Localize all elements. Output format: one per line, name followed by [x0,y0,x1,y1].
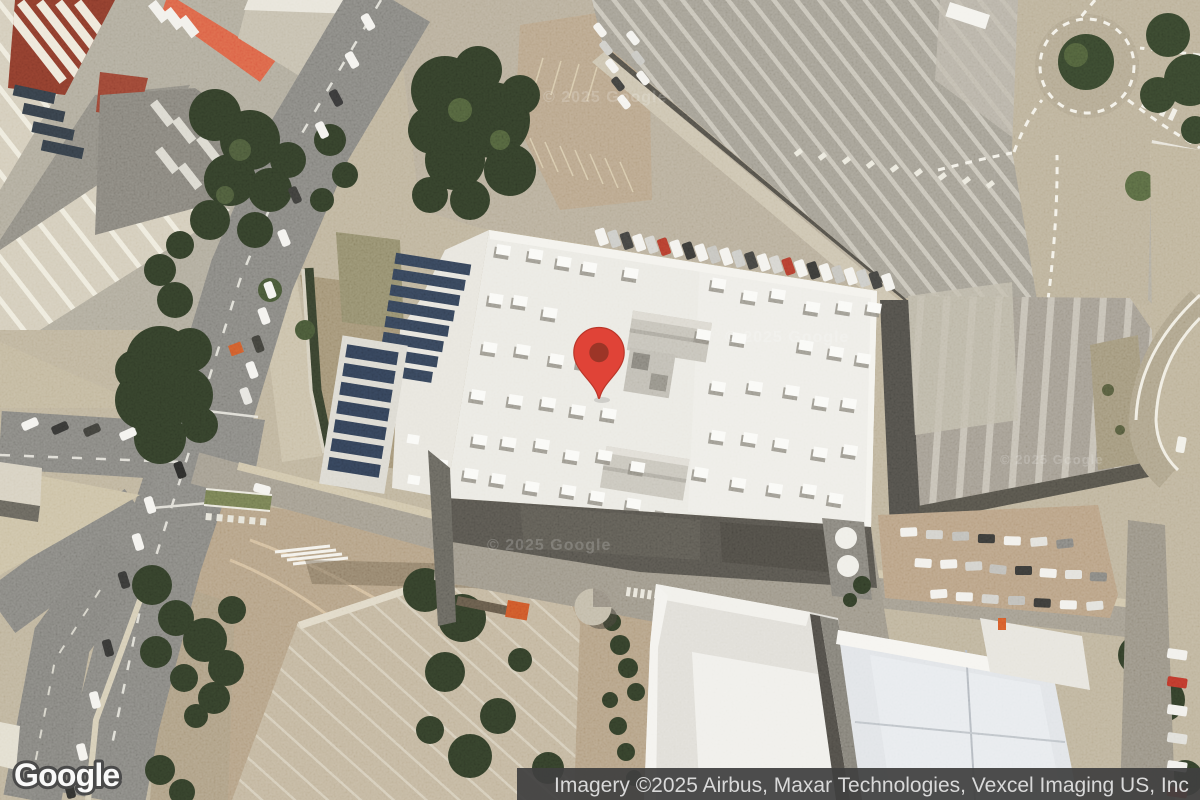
svg-text:© 2025 Google: © 2025 Google [543,89,667,106]
svg-text:© 2025 Google: © 2025 Google [725,329,849,346]
svg-text:© 2025 Google: © 2025 Google [1000,452,1104,467]
svg-text:Imagery ©2025 Airbus, Maxar Te: Imagery ©2025 Airbus, Maxar Technologies… [554,774,1189,797]
svg-text:© 2025 Google: © 2025 Google [487,537,611,554]
svg-text:Google: Google [14,757,119,793]
